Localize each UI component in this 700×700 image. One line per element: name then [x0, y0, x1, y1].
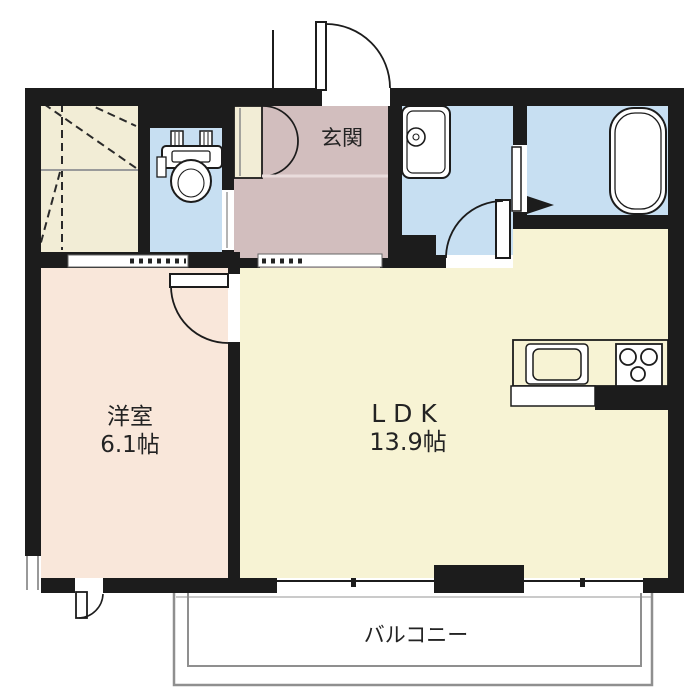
- kitchen-sink-inner: [533, 349, 581, 380]
- shoe-cabinet: [234, 106, 262, 178]
- window-center-tick: [351, 578, 356, 587]
- bathroom-door-panel: [512, 147, 521, 211]
- ldk-size-label: 13.9帖: [369, 428, 446, 456]
- wall-hall-bottom-left: [234, 258, 260, 268]
- bedroom-door-opening: [228, 274, 240, 342]
- window-center-tick: [580, 578, 585, 587]
- bedroom-size-label: 6.1帖: [100, 432, 160, 458]
- washbasin-icon: [402, 106, 450, 178]
- floorplan-drawing: 玄関 洋室 6.1帖 LDK 13.9帖 バルコニー: [0, 0, 700, 700]
- kitchen-counter-front: [511, 386, 595, 406]
- bedroom-exterior-door-leaf: [76, 592, 87, 618]
- ldk-label: LDK: [371, 399, 445, 428]
- wall-bathroom-bottom: [513, 215, 668, 229]
- hall-ldk-sliding-door: [258, 254, 382, 267]
- wall-washroom-jut: [396, 235, 436, 257]
- wall-bottom-2: [103, 578, 277, 593]
- room-closet-floor: [41, 106, 138, 252]
- bedroom-door-leaf: [170, 274, 228, 287]
- wall-bedroom-ldk-lower: [228, 342, 240, 580]
- balcony-label: バルコニー: [364, 623, 469, 647]
- wall-kitchen-stub: [595, 386, 668, 410]
- floorplan: 玄関 洋室 6.1帖 LDK 13.9帖 バルコニー: [0, 0, 700, 700]
- bedroom-exterior-door-opening: [75, 578, 103, 593]
- washroom-door-leaf: [496, 200, 510, 258]
- toilet-tank-part: [200, 131, 212, 146]
- bedroom-label: 洋室: [107, 404, 153, 430]
- bathtub-outer: [610, 108, 666, 214]
- toilet-bowl: [171, 160, 211, 202]
- bathtub-icon: [610, 108, 666, 214]
- wall-left: [25, 88, 41, 556]
- wall-right: [668, 88, 684, 593]
- wall-toilet-top-band: [146, 106, 234, 128]
- entrance-door-opening: [322, 88, 390, 106]
- entrance-label: 玄関: [321, 126, 363, 150]
- toilet-tank-part: [171, 131, 183, 146]
- entrance-door-arc: [326, 24, 390, 88]
- wall-bottom-1: [41, 578, 75, 593]
- wall-bottom-3: [643, 578, 684, 593]
- toilet-door-opening: [222, 190, 234, 250]
- entrance-door-leaf: [316, 22, 326, 90]
- shoe-cabinet-box: [234, 106, 262, 178]
- toilet-控制-panel: [157, 157, 166, 177]
- washbasin-faucet: [407, 128, 425, 146]
- wall-bottom-pillar: [434, 565, 524, 593]
